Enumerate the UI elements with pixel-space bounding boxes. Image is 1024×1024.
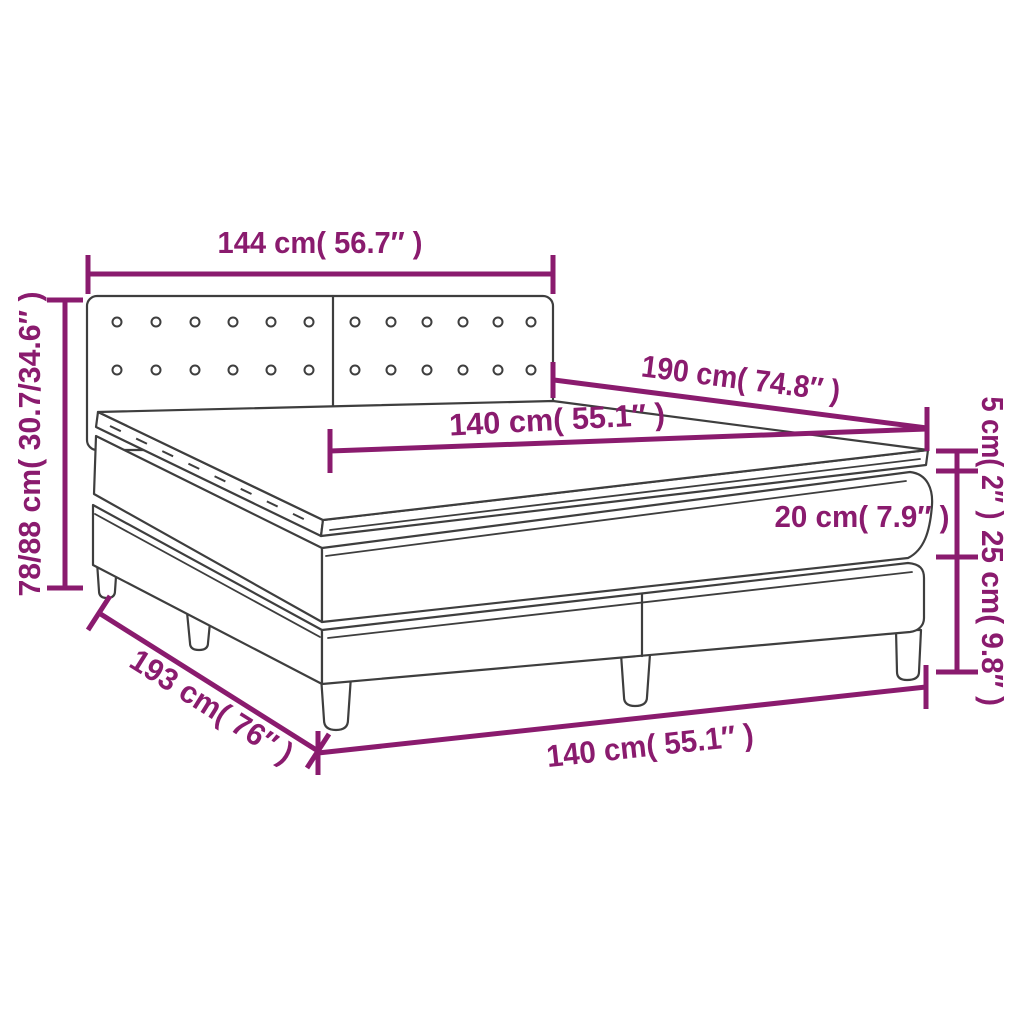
tufting-button (527, 366, 536, 375)
label-overall-height: 78/88 cm( 30.7/34.6″ ) (12, 292, 47, 597)
tufting-button (423, 318, 432, 327)
tufting-button (494, 366, 503, 375)
dimension-mattress-thickness: 20 cm( 7.9″ ) (775, 499, 950, 534)
label-mattress-thickness: 20 cm( 7.9″ ) (775, 499, 950, 534)
tufting-button (191, 366, 200, 375)
label-topper-thickness: 5 cm( 2″ ) (975, 397, 1010, 520)
dimension-overall-height: 78/88 cm( 30.7/34.6″ ) (12, 292, 83, 597)
tufting-button (113, 366, 122, 375)
bed-dimension-diagram: 144 cm( 56.7″ ) 78/88 cm( 30.7/34.6″ ) 1… (0, 0, 1024, 1024)
tufting-button (387, 366, 396, 375)
leg-right (896, 630, 921, 680)
label-overall-length: 193 cm( 76″ ) (124, 642, 300, 771)
dim-tick (88, 596, 110, 630)
tufting-button (267, 366, 276, 375)
tufting-button (387, 318, 396, 327)
label-bed-length: 190 cm( 74.8″ ) (640, 348, 843, 408)
leg-front-middle (621, 654, 650, 706)
dimension-layer-heights: 5 cm( 2″ ) 25 cm( 9.8″ ) (936, 397, 1010, 707)
tufting-button (229, 366, 238, 375)
tufting-button (423, 366, 432, 375)
tufting-button (152, 366, 161, 375)
tufting-button (351, 366, 360, 375)
diagram-canvas: 144 cm( 56.7″ ) 78/88 cm( 30.7/34.6″ ) 1… (0, 0, 1024, 1024)
tufting-button (152, 318, 161, 327)
dimension-headboard-width: 144 cm( 56.7″ ) (88, 225, 553, 294)
tufting-button (191, 318, 200, 327)
tufting-button (267, 318, 276, 327)
tufting-button (229, 318, 238, 327)
tufting-button (527, 318, 536, 327)
tufting-button (305, 366, 314, 375)
label-headboard-width: 144 cm( 56.7″ ) (218, 225, 423, 260)
tufting-button (351, 318, 360, 327)
tufting-button (113, 318, 122, 327)
tufting-button (494, 318, 503, 327)
label-base-height: 25 cm( 9.8″ ) (975, 530, 1010, 706)
tufting-button (305, 318, 314, 327)
tufting-button (459, 366, 468, 375)
tufting-button (459, 318, 468, 327)
